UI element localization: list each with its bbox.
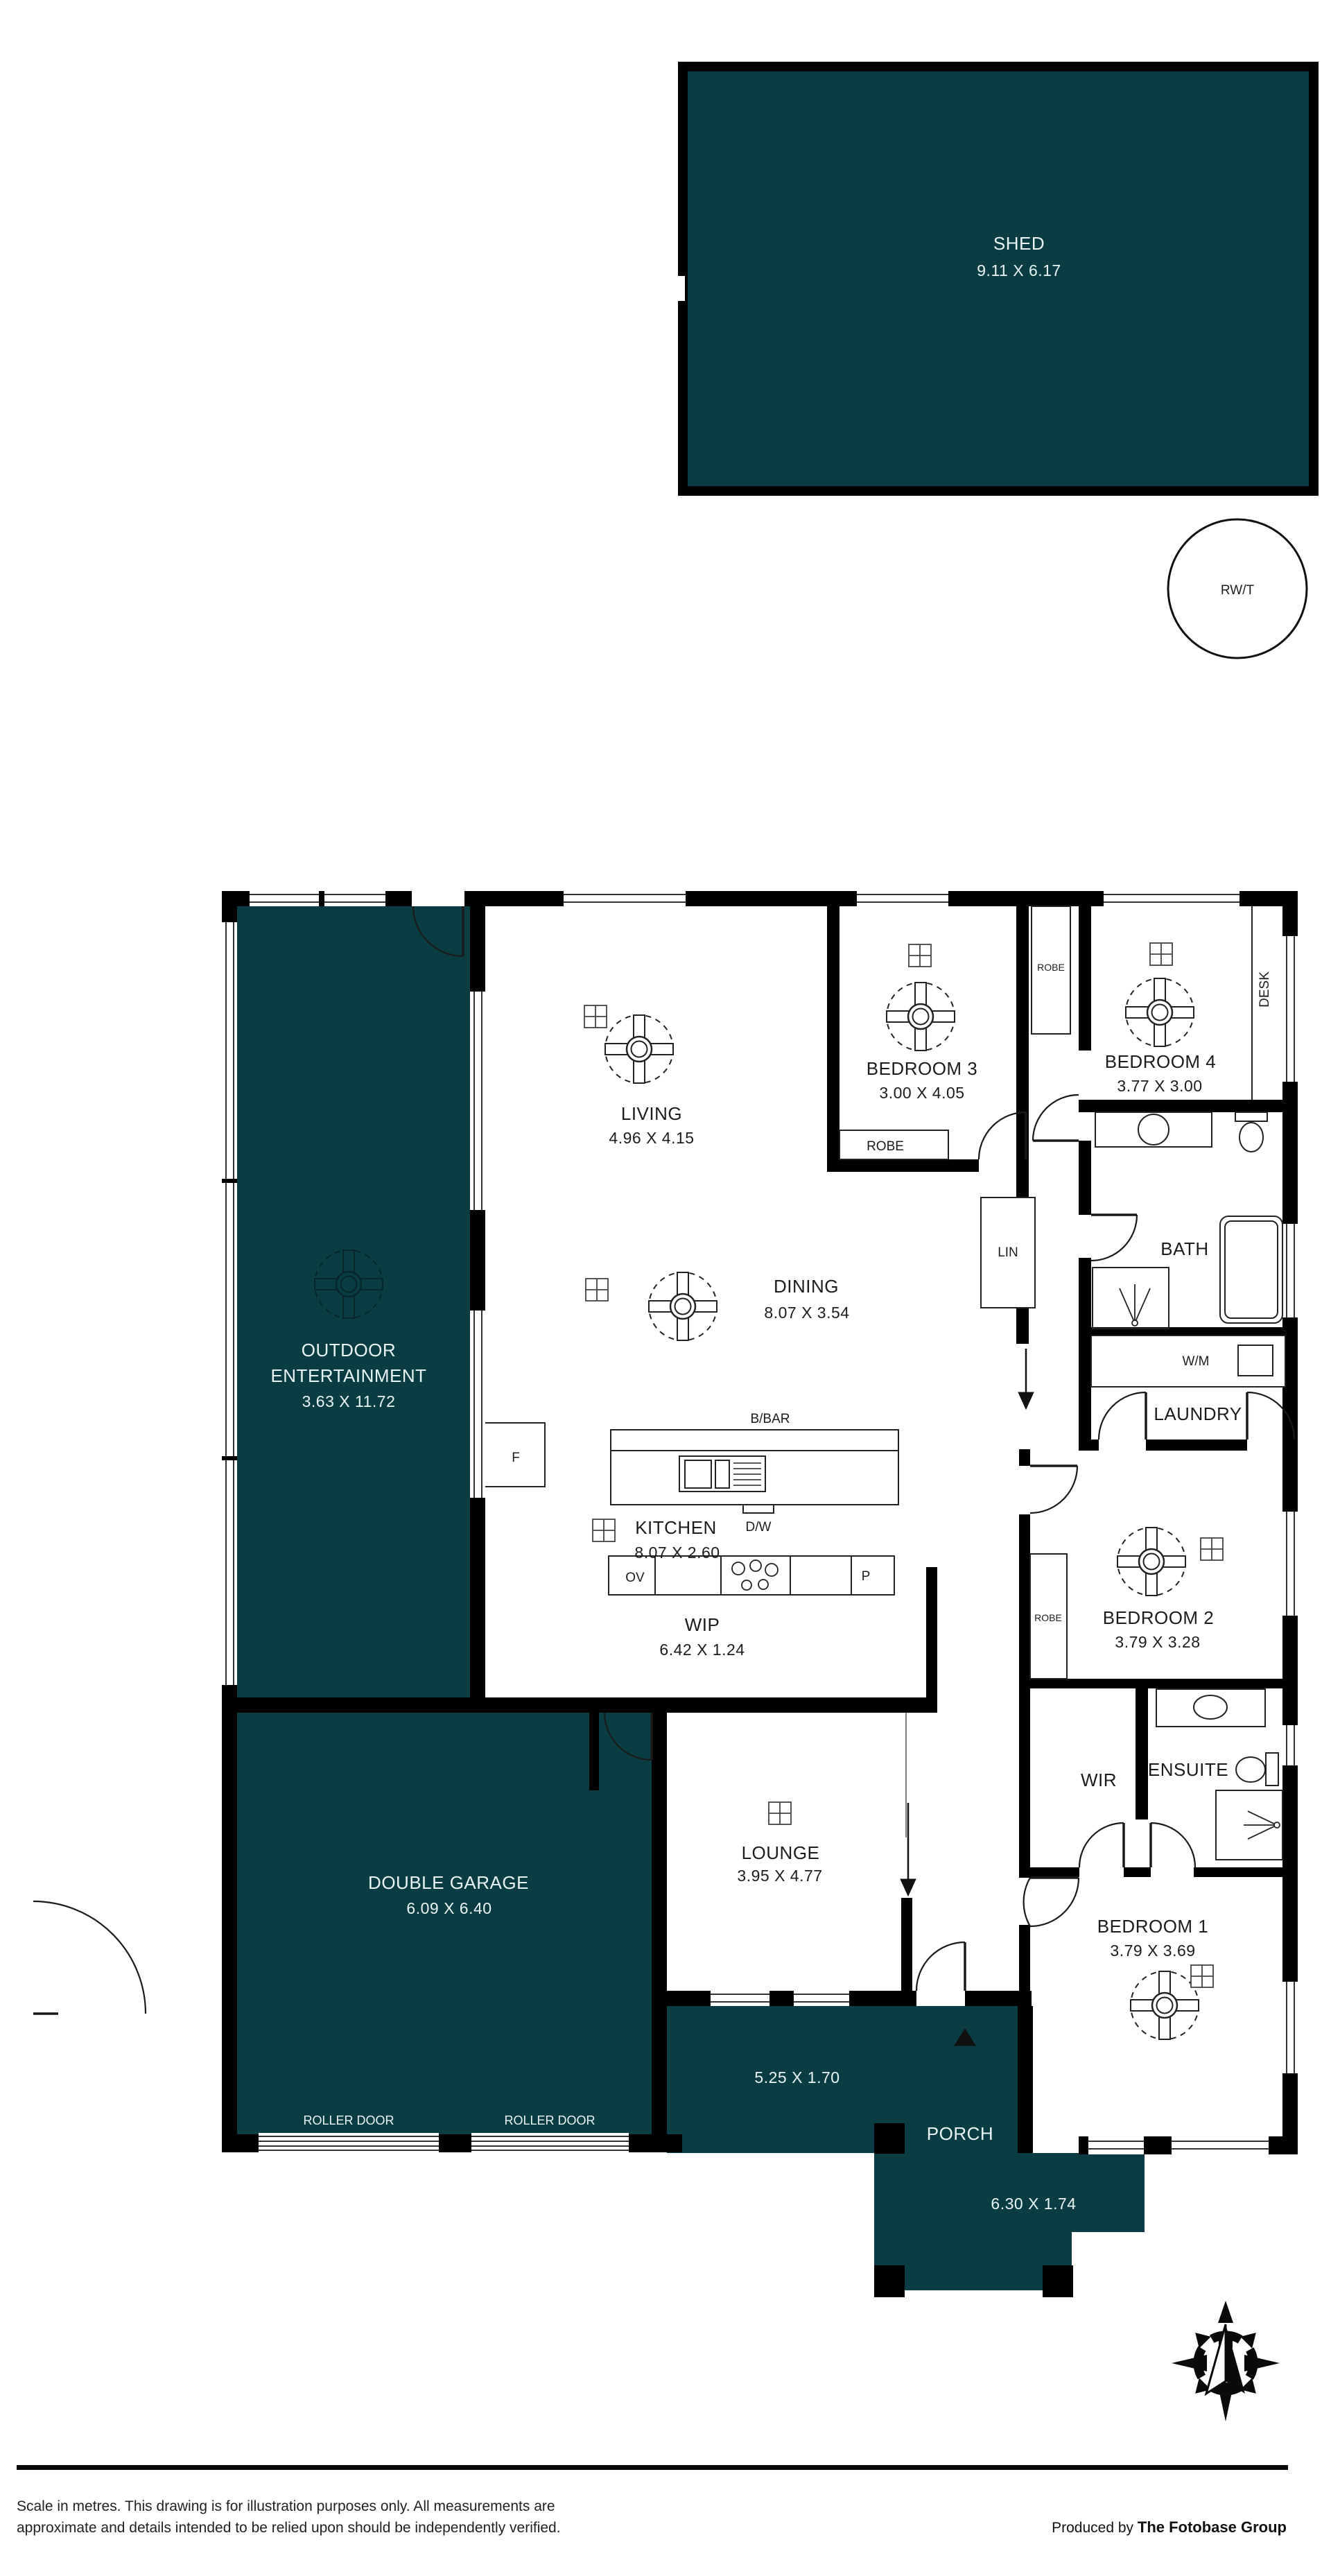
porch-step-cut	[1072, 2232, 1145, 2291]
bedroom3-robe-label: ROBE	[867, 1139, 904, 1154]
living-label: LIVING	[621, 1103, 682, 1124]
wip-label: WIP	[685, 1614, 720, 1635]
bedroom4-robe-label: ROBE	[1037, 962, 1065, 973]
linen-label: LIN	[998, 1245, 1018, 1260]
bedroom1-dim: 3.79 X 3.69	[1110, 1942, 1195, 1960]
fridge-label: F	[512, 1451, 520, 1465]
entry-arrow-head	[901, 1879, 916, 1896]
porch-upper-dim: 5.25 X 1.70	[754, 2068, 840, 2086]
bedroom2-robe-label: ROBE	[1034, 1612, 1062, 1623]
door-bath	[1091, 1215, 1137, 1261]
dishwasher	[743, 1505, 774, 1513]
porch-label: PORCH	[927, 2123, 993, 2144]
fan-icon	[1117, 1528, 1185, 1596]
floor-plan-page: SHED 9.11 X 6.17 RW/T	[0, 0, 1331, 2576]
bath-label: BATH	[1160, 1238, 1208, 1259]
lounge-dim: 3.95 X 4.77	[737, 1867, 822, 1885]
compass-west-spike	[1172, 2355, 1207, 2371]
window-lounge-wall	[711, 1991, 965, 2006]
porch-lower-dim: 6.30 X 1.74	[991, 2195, 1076, 2213]
teal-areas	[237, 906, 1145, 2291]
window-grid-icon	[1150, 943, 1172, 965]
shed-label: SHED	[993, 233, 1045, 254]
window-grid-icon	[1201, 1538, 1223, 1560]
fan-icon	[1126, 978, 1194, 1046]
desk-label: DESK	[1258, 971, 1272, 1008]
shed: SHED 9.11 X 6.17	[674, 67, 1314, 491]
outdoor-label-2: ENTERTAINMENT	[270, 1365, 426, 1386]
bathtub	[1220, 1216, 1282, 1323]
footer: Scale in metres. This drawing is for ill…	[17, 2465, 1288, 2536]
bedroom4-dim: 3.77 X 3.00	[1117, 1077, 1202, 1095]
wir-label: WIR	[1081, 1770, 1117, 1790]
kitchen-bench	[609, 1556, 894, 1595]
island-bench	[611, 1430, 898, 1513]
bath-fixtures	[1093, 1112, 1282, 1329]
footer-divider	[17, 2465, 1288, 2470]
window-grid-icon	[586, 1279, 608, 1301]
bath-vanity	[1095, 1112, 1212, 1147]
laundry-label: LAUNDRY	[1154, 1403, 1242, 1424]
living-dim: 4.96 X 4.15	[609, 1129, 694, 1147]
dining-label: DINING	[774, 1276, 839, 1297]
door-bedroom2	[1030, 1466, 1077, 1513]
porch-pillar	[1043, 2265, 1073, 2297]
toilet-tank	[1266, 1753, 1278, 1786]
lounge-label: LOUNGE	[742, 1842, 820, 1863]
oven-label: OV	[625, 1571, 645, 1585]
pantry-label: P	[862, 1569, 871, 1584]
compass-top-spike	[1218, 2301, 1233, 2323]
footer-credit-prefix: Produced by	[1052, 2520, 1138, 2536]
door-bedroom4	[1033, 1095, 1079, 1141]
footer-credit: Produced by The Fotobase Group	[1052, 2518, 1287, 2536]
rainwater-tank: RW/T	[1168, 519, 1307, 658]
garage-dim: 6.09 X 6.40	[406, 1899, 491, 1917]
washing-machine-label: W/M	[1182, 1354, 1209, 1369]
shed-opening	[674, 276, 685, 301]
arrows	[901, 1349, 1034, 2046]
bedroom2-dim: 3.79 X 3.28	[1115, 1633, 1200, 1651]
floor-plan-svg: SHED 9.11 X 6.17 RW/T	[0, 0, 1331, 2576]
window-left-wall	[222, 922, 237, 1685]
hall-arrow-head	[1018, 1392, 1034, 1409]
toilet-bowl	[1239, 1123, 1263, 1152]
roller-door-label-1: ROLLER DOOR	[303, 2113, 394, 2127]
shed-dim: 9.11 X 6.17	[977, 261, 1061, 279]
window-grid-icon	[584, 1005, 607, 1028]
fan-icon	[1131, 1971, 1199, 2039]
footer-disclaimer-line2: approximate and details intended to be r…	[17, 2520, 561, 2536]
compass: N	[1172, 2301, 1280, 2421]
toilet-bowl	[1236, 1757, 1265, 1782]
bedroom1-label: BEDROOM 1	[1097, 1916, 1209, 1937]
door-entry	[916, 1942, 965, 1991]
shower-head-icon	[1120, 1284, 1150, 1326]
dishwasher-label: D/W	[746, 1520, 772, 1535]
kitchen-label: KITCHEN	[635, 1517, 717, 1538]
bedroom3-label: BEDROOM 3	[867, 1058, 978, 1079]
footer-disclaimer-line1: Scale in metres. This drawing is for ill…	[17, 2498, 555, 2514]
fan-icon	[887, 983, 955, 1051]
window-grid-icon	[593, 1519, 615, 1541]
compass-south-spike	[1217, 2383, 1234, 2421]
door-bedroom1	[1024, 1878, 1079, 1926]
bath-shower	[1093, 1268, 1169, 1329]
fan-icon	[605, 1015, 673, 1083]
door-wir	[1079, 1823, 1124, 1867]
outdoor-dim: 3.63 X 11.72	[302, 1392, 396, 1410]
bedroom3-dim: 3.00 X 4.05	[879, 1084, 964, 1102]
door-side-gate	[33, 1901, 146, 2014]
window-bedroom1-wall	[1088, 2136, 1269, 2154]
compass-east-spike	[1244, 2355, 1280, 2371]
porch-pillar	[874, 2123, 905, 2154]
rainwater-tank-label: RW/T	[1221, 583, 1255, 598]
window-grid-icon	[909, 944, 931, 967]
garage-label: DOUBLE GARAGE	[368, 1872, 529, 1893]
outdoor-label-1: OUTDOOR	[302, 1340, 396, 1360]
dining-dim: 8.07 X 3.54	[764, 1304, 849, 1322]
window-grid-icon	[769, 1802, 791, 1824]
porch-pillar	[874, 2265, 905, 2297]
bedroom4-label: BEDROOM 4	[1105, 1051, 1217, 1072]
window-grid-icon	[1191, 1965, 1213, 1987]
kitchen-dim: 8.07 X 2.60	[634, 1544, 720, 1562]
ensuite-label: ENSUITE	[1148, 1759, 1228, 1780]
shower-head-icon	[1244, 1811, 1280, 1839]
toilet-tank	[1235, 1112, 1267, 1121]
breakfast-bar-label: B/BAR	[750, 1412, 790, 1426]
footer-credit-brand: The Fotobase Group	[1138, 2518, 1287, 2536]
wip-dim: 6.42 X 1.24	[659, 1641, 745, 1659]
entry-door-opening	[916, 1991, 965, 2006]
bedroom2-label: BEDROOM 2	[1103, 1607, 1215, 1628]
door-laundry-left	[1099, 1392, 1146, 1440]
fan-icon	[649, 1272, 717, 1340]
door-ensuite	[1151, 1823, 1195, 1867]
roller-door-label-2: ROLLER DOOR	[504, 2113, 595, 2127]
